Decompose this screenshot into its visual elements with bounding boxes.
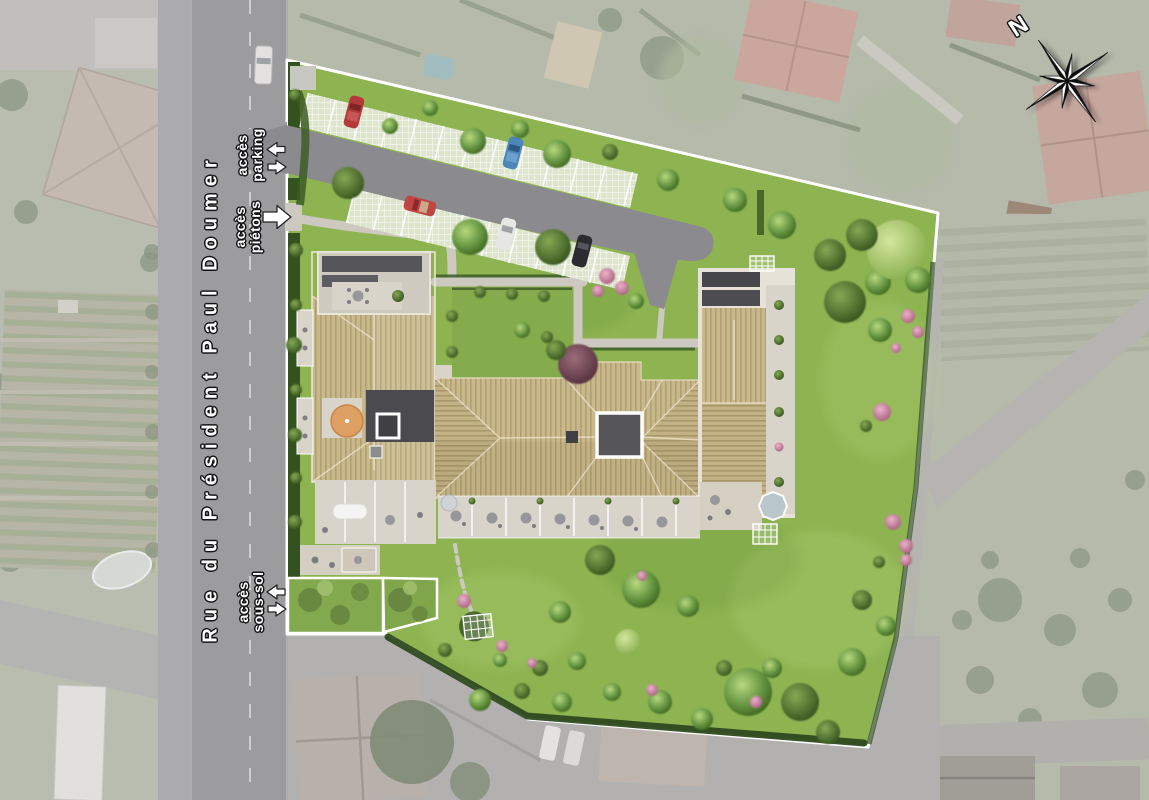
roof-vent <box>566 431 578 443</box>
building-east-wing <box>698 256 795 544</box>
octagonal-pool <box>759 492 787 520</box>
rooftop-terrace <box>332 282 402 310</box>
courtyard-lawn <box>452 290 572 385</box>
jacuzzi <box>333 504 367 519</box>
sidewalk <box>158 0 192 800</box>
garden-plots <box>288 578 437 633</box>
west-balconies <box>297 398 313 454</box>
parked-van <box>254 46 272 85</box>
terrace <box>435 365 452 378</box>
gray-parasol <box>441 495 457 511</box>
pedestrian-access-line1: accès <box>233 201 248 254</box>
utility-pad <box>290 66 316 90</box>
parking-access-line2: parking <box>250 128 265 181</box>
building-west-wing <box>297 252 435 482</box>
parking-access-line1: accès <box>235 128 250 181</box>
east-patio <box>700 482 762 530</box>
pedestrian-access-line2: piétons <box>248 201 263 254</box>
south-terraces <box>438 495 700 538</box>
central-skylight <box>597 413 642 457</box>
terrace-table <box>353 291 364 302</box>
northwest-block <box>318 252 430 314</box>
site-plan-canvas <box>0 0 1149 800</box>
terrace-planter <box>392 290 404 302</box>
pedestrian-access-label: accès piétons <box>233 201 263 254</box>
site-plan-image: Rue du Président Paul Doumer accès parki… <box>0 0 1149 800</box>
basement-access-line2: sous-sol <box>251 572 266 633</box>
roof-vent <box>370 446 382 458</box>
skylight <box>377 414 399 438</box>
street-name-label: Rue du Président Paul Doumer <box>200 153 223 642</box>
west-balconies <box>297 310 313 366</box>
basement-access-line1: accès <box>236 572 251 633</box>
basement-access-label: accès sous-sol <box>236 572 266 633</box>
parking-access-label: accès parking <box>235 128 265 181</box>
street-road <box>158 0 288 800</box>
